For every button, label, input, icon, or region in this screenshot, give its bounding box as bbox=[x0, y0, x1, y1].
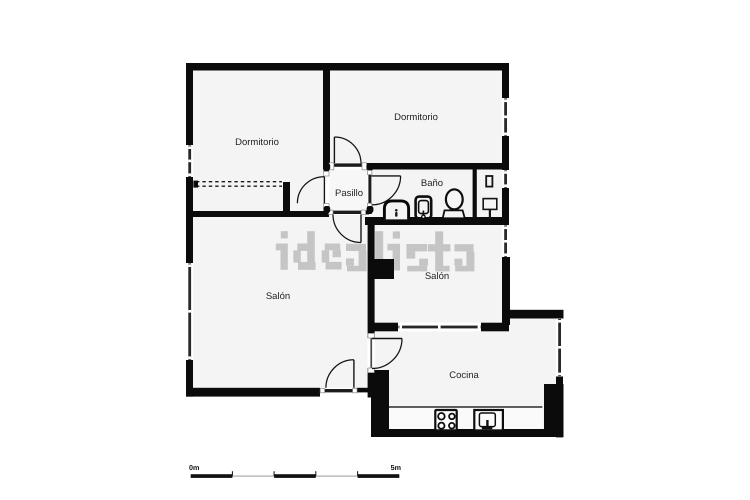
svg-text:Salón: Salón bbox=[266, 291, 290, 302]
svg-text:Dormitorio: Dormitorio bbox=[394, 112, 438, 123]
svg-text:Baño: Baño bbox=[421, 178, 443, 189]
svg-text:Salón: Salón bbox=[425, 271, 449, 282]
svg-text:0m: 0m bbox=[189, 463, 199, 472]
svg-text:Pasillo: Pasillo bbox=[335, 188, 363, 199]
svg-text:Cocina: Cocina bbox=[449, 370, 479, 381]
svg-text:Dormitorio: Dormitorio bbox=[235, 137, 279, 148]
svg-text:5m: 5m bbox=[391, 463, 401, 472]
